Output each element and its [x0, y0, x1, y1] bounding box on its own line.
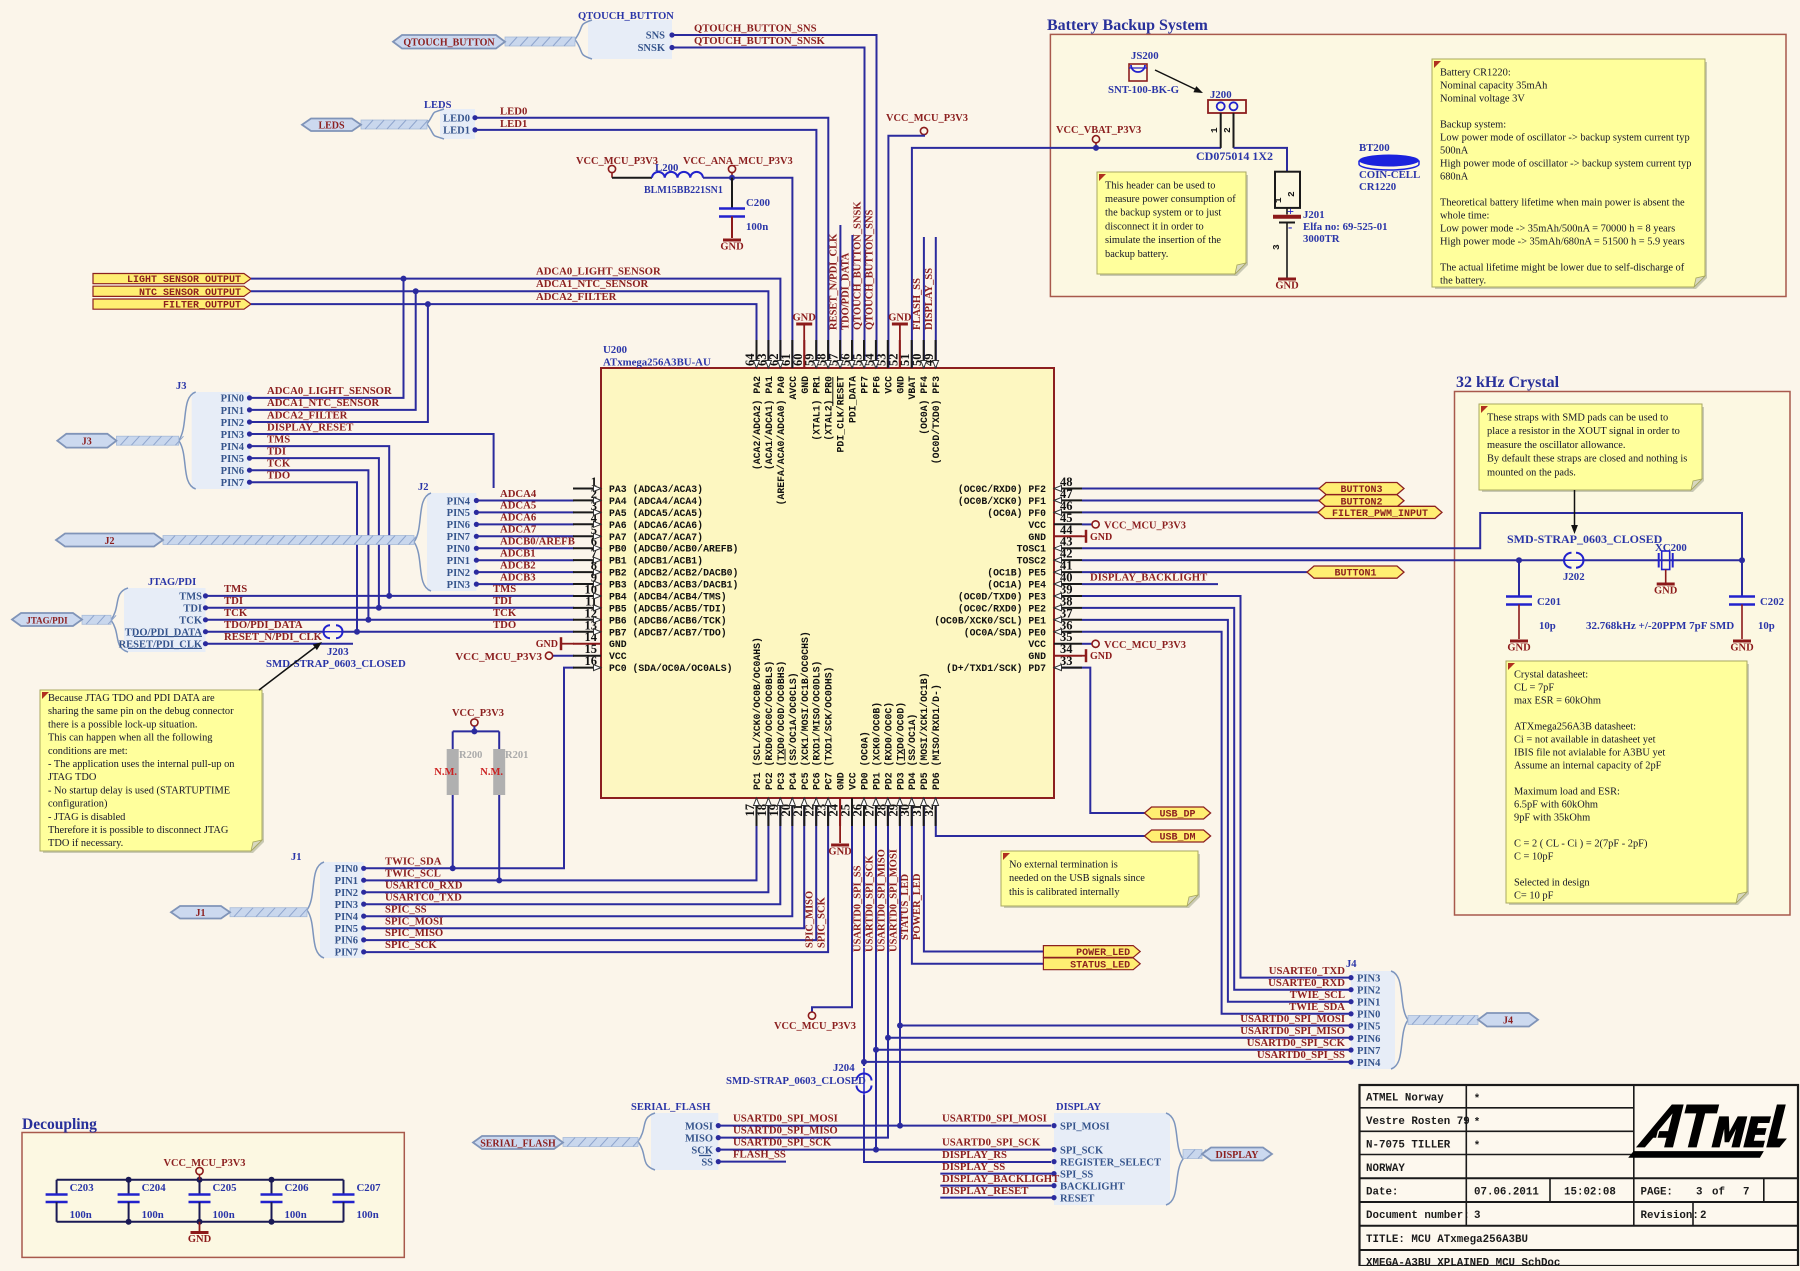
svg-text:Document number:: Document number:: [1366, 1210, 1470, 1222]
svg-text:High power mode -> 35mAh/680nA: High power mode -> 35mAh/680nA = 51500 h…: [1440, 236, 1685, 247]
svg-text:max ESR = 60kOhm: max ESR = 60kOhm: [1514, 695, 1601, 706]
svg-text:PD5 (MOSI/XCK1/OC1B): PD5 (MOSI/XCK1/OC1B): [919, 672, 930, 790]
svg-text:PIN1: PIN1: [335, 876, 358, 887]
svg-text:measure power consumption of: measure power consumption of: [1105, 194, 1236, 205]
svg-text:TWIE_SCL: TWIE_SCL: [1290, 989, 1345, 1001]
svg-text:100n: 100n: [142, 1209, 164, 1221]
svg-text:PIN5: PIN5: [1357, 1022, 1380, 1033]
svg-text:R201: R201: [505, 750, 528, 761]
svg-text:PIN7: PIN7: [335, 948, 358, 959]
svg-text:GND: GND: [1090, 532, 1112, 543]
svg-text:MISO: MISO: [685, 1133, 713, 1144]
svg-text:SMD-STRAP_0603_CLOSED: SMD-STRAP_0603_CLOSED: [1507, 532, 1663, 546]
svg-text:STATUS_LED: STATUS_LED: [1070, 960, 1130, 971]
svg-text:500nA: 500nA: [1440, 145, 1469, 156]
svg-text:- JTAG is disabled: - JTAG is disabled: [48, 812, 126, 823]
svg-text:USARTC0_RXD: USARTC0_RXD: [385, 880, 463, 892]
svg-text:(ACA2/ADCA2) PA2: (ACA2/ADCA2) PA2: [752, 376, 763, 470]
svg-text:ADCA1_NTC_SENSOR: ADCA1_NTC_SENSOR: [267, 397, 380, 409]
svg-text:Crystal datasheet:: Crystal datasheet:: [1514, 669, 1588, 680]
svg-text:IBIS file not avialable for A3: IBIS file not avialable for A3BU yet: [1514, 747, 1665, 758]
svg-text:9pF with 35kOhm: 9pF with 35kOhm: [1514, 812, 1590, 823]
svg-text:(OC1A) PE4: (OC1A) PE4: [987, 580, 1046, 591]
svg-text:VCC_MCU_P3V3: VCC_MCU_P3V3: [164, 1158, 246, 1169]
svg-text:QTOUCH_BUTTON: QTOUCH_BUTTON: [578, 11, 674, 22]
svg-text:BACKLIGHT: BACKLIGHT: [1060, 1181, 1125, 1192]
svg-text:(OC0C/RXD0) PF2: (OC0C/RXD0) PF2: [958, 484, 1046, 495]
svg-text:ADCA0_LIGHT_SENSOR: ADCA0_LIGHT_SENSOR: [267, 385, 392, 397]
svg-text:ADCA7: ADCA7: [500, 524, 537, 536]
svg-text:PIN0: PIN0: [447, 544, 470, 555]
svg-text:PIN6: PIN6: [335, 936, 358, 947]
svg-text:JS200: JS200: [1131, 50, 1159, 62]
svg-text:RESET_N/PDI_CLK: RESET_N/PDI_CLK: [829, 233, 840, 330]
svg-text:CL = 7pF: CL = 7pF: [1514, 682, 1554, 693]
svg-text:USARTD0_SPI_MISO: USARTD0_SPI_MISO: [1240, 1025, 1345, 1037]
svg-text:PIN7: PIN7: [221, 478, 244, 489]
svg-text:VCC: VCC: [1028, 520, 1046, 531]
svg-text:USARTD0_SPI_MISO: USARTD0_SPI_MISO: [733, 1125, 838, 1137]
svg-text:Elfa no: 69-525-01: Elfa no: 69-525-01: [1303, 221, 1388, 233]
svg-text:J3: J3: [82, 437, 92, 448]
svg-text:Low power mode -> 35mAh/500nA: Low power mode -> 35mAh/500nA = 70000 h …: [1440, 223, 1675, 234]
svg-text:disconnect it in order to: disconnect it in order to: [1105, 221, 1204, 232]
svg-text:REGISTER_SELECT: REGISTER_SELECT: [1060, 1157, 1161, 1168]
svg-text:GND: GND: [609, 639, 627, 650]
svg-text:PIN7: PIN7: [1357, 1046, 1380, 1057]
svg-text:SPIC_SCK: SPIC_SCK: [817, 896, 828, 948]
svg-text:PAGE:: PAGE:: [1641, 1187, 1673, 1199]
svg-text:(OC0A) PF0: (OC0A) PF0: [987, 508, 1046, 519]
svg-text:TDO/PDI_DATA: TDO/PDI_DATA: [224, 619, 303, 631]
svg-text:TDI: TDI: [183, 604, 202, 615]
svg-text:6.5pF with 60kOhm: 6.5pF with 60kOhm: [1514, 799, 1598, 810]
svg-text:C201: C201: [1537, 596, 1561, 608]
svg-text:Battery Backup System: Battery Backup System: [1047, 17, 1209, 34]
svg-text:By default these straps are cl: By default these straps are closed and n…: [1487, 454, 1687, 465]
svg-text:PIN0: PIN0: [221, 394, 244, 405]
svg-text:J1: J1: [291, 852, 302, 863]
svg-text:680nA: 680nA: [1440, 171, 1469, 182]
svg-text:PD3 (TXD0/OC0D): PD3 (TXD0/OC0D): [895, 702, 906, 790]
svg-text:ADCB2: ADCB2: [500, 559, 536, 571]
svg-text:PIN2: PIN2: [221, 418, 244, 429]
svg-text:DISPLAY_RS: DISPLAY_RS: [942, 1149, 1007, 1161]
svg-text:PB6 (ADCB6/ACB6/TCK): PB6 (ADCB6/ACB6/TCK): [609, 615, 727, 626]
svg-text:GND: GND: [1028, 651, 1046, 662]
svg-text:SMD-STRAP_0603_CLOSED: SMD-STRAP_0603_CLOSED: [726, 1075, 866, 1087]
svg-text:FLASH_SS: FLASH_SS: [912, 278, 923, 330]
svg-text:BLM15BB221SN1: BLM15BB221SN1: [644, 185, 723, 196]
svg-text:Because JTAG TDO and PDI DATA: Because JTAG TDO and PDI DATA are: [48, 693, 215, 704]
svg-text:C = 10pF: C = 10pF: [1514, 851, 1554, 862]
svg-text:POWER_LED: POWER_LED: [912, 873, 923, 940]
svg-text:VCC_MCU_P3V3: VCC_MCU_P3V3: [1104, 521, 1186, 532]
svg-text:J1: J1: [196, 908, 206, 919]
svg-text:Nominal capacity 35mAh: Nominal capacity 35mAh: [1440, 80, 1548, 91]
svg-text:PIN4: PIN4: [1357, 1058, 1381, 1069]
svg-text:STATUS_LED: STATUS_LED: [900, 873, 911, 940]
svg-text:PA3 (ADCA3/ACA3): PA3 (ADCA3/ACA3): [609, 484, 703, 495]
svg-text:the battery.: the battery.: [1440, 275, 1486, 286]
svg-text:LED0: LED0: [443, 114, 470, 125]
svg-text:PIN5: PIN5: [335, 924, 358, 935]
svg-text:Revision:: Revision:: [1641, 1210, 1699, 1222]
svg-text:backup battery.: backup battery.: [1105, 249, 1168, 260]
svg-text:PC7 (TXD1/SCK/OC0DHS): PC7 (TXD1/SCK/OC0DHS): [824, 667, 835, 790]
svg-text:GND: GND: [1507, 643, 1531, 654]
svg-text:*: *: [1474, 1141, 1480, 1153]
svg-text:PDI_CLK/RESET: PDI_CLK/RESET: [836, 376, 847, 453]
svg-text:USARTE0_RXD: USARTE0_RXD: [1268, 977, 1345, 989]
svg-text:LED0: LED0: [500, 106, 527, 118]
svg-text:PD2 (RXD0/OC0C): PD2 (RXD0/OC0C): [883, 702, 894, 790]
svg-text:CR1220: CR1220: [1359, 181, 1396, 193]
svg-text:PB5 (ADCB5/ACB5/TDI): PB5 (ADCB5/ACB5/TDI): [609, 603, 727, 614]
svg-text:J2: J2: [418, 482, 429, 493]
svg-text:LEDS: LEDS: [424, 100, 452, 111]
svg-text:R200: R200: [459, 750, 482, 761]
svg-text:TWIC_SCL: TWIC_SCL: [385, 868, 441, 880]
svg-text:PB7 (ADCB7/ACB7/TDO): PB7 (ADCB7/ACB7/TDO): [609, 627, 727, 638]
svg-text:the backup system or to just: the backup system or to just: [1105, 208, 1221, 219]
svg-text:VCC_P3V3: VCC_P3V3: [452, 708, 504, 719]
svg-text:PIN2: PIN2: [1357, 986, 1380, 997]
svg-text:QTOUCH_BUTTON: QTOUCH_BUTTON: [403, 38, 495, 49]
svg-text:mounted on the pads.: mounted on the pads.: [1487, 468, 1576, 479]
svg-text:TMS: TMS: [224, 583, 247, 595]
svg-text:SS: SS: [701, 1157, 713, 1168]
svg-text:PC1 (SCL/XCK0/OC0B/OC0AHS): PC1 (SCL/XCK0/OC0B/OC0AHS): [752, 637, 763, 790]
svg-text:ADCB3: ADCB3: [500, 571, 536, 583]
svg-text:SERIAL_FLASH: SERIAL_FLASH: [480, 1138, 556, 1149]
svg-text:NORWAY: NORWAY: [1366, 1163, 1405, 1175]
svg-text:PIN3: PIN3: [1357, 973, 1380, 984]
svg-text:N.M.: N.M.: [480, 767, 503, 778]
svg-text:LIGHT SENSOR OUTPUT: LIGHT SENSOR OUTPUT: [127, 275, 241, 286]
svg-text:FILTER_PWM_INPUT: FILTER_PWM_INPUT: [1332, 509, 1428, 520]
svg-text:3000TR: 3000TR: [1303, 233, 1340, 245]
svg-text:ADCA5: ADCA5: [500, 500, 536, 512]
svg-text:SPI_SCK: SPI_SCK: [1060, 1145, 1104, 1156]
svg-text:VCC: VCC: [1028, 639, 1046, 650]
svg-text:LEDS: LEDS: [318, 121, 345, 132]
svg-text:VCC_MCU_P3V3: VCC_MCU_P3V3: [886, 113, 968, 124]
svg-text:VCC_ANA_MCU_P3V3: VCC_ANA_MCU_P3V3: [683, 156, 793, 167]
svg-text:FLASH_SS: FLASH_SS: [733, 1149, 786, 1161]
svg-text:GND: GND: [720, 242, 744, 253]
svg-text:PIN1: PIN1: [1357, 998, 1380, 1009]
svg-text:BUTTON1: BUTTON1: [1334, 569, 1376, 580]
svg-text:USB_DM: USB_DM: [1159, 833, 1195, 844]
svg-text:USARTD0_SPI_SCK: USARTD0_SPI_SCK: [864, 855, 875, 952]
svg-text:RESET: RESET: [1060, 1193, 1094, 1204]
svg-text:GND: GND: [1730, 643, 1754, 654]
svg-text:VCC_MCU_P3V3: VCC_MCU_P3V3: [1104, 640, 1186, 651]
svg-text:ATxmega256A3BU-AU: ATxmega256A3BU-AU: [603, 357, 711, 369]
svg-text:USARTD0_SPI_MOSI: USARTD0_SPI_MOSI: [888, 849, 899, 952]
svg-text:PIN0: PIN0: [1357, 1010, 1380, 1021]
svg-text:SPIC_MISO: SPIC_MISO: [385, 927, 443, 939]
svg-text:PIN6: PIN6: [447, 520, 470, 531]
svg-text:JTAG/PDI: JTAG/PDI: [26, 615, 68, 625]
svg-text:PIN4: PIN4: [221, 442, 245, 453]
svg-text:USARTC0_TXD: USARTC0_TXD: [385, 891, 462, 903]
svg-text:TCK: TCK: [493, 607, 517, 619]
svg-text:PB2 (ADCB2/ACB2/DACB0): PB2 (ADCB2/ACB2/DACB0): [609, 568, 738, 579]
svg-text:DISPLAY_RESET: DISPLAY_RESET: [942, 1185, 1028, 1197]
svg-text:USARTD0_SPI_MOSI: USARTD0_SPI_MOSI: [733, 1113, 838, 1125]
svg-text:USARTD0_SPI_SCK: USARTD0_SPI_SCK: [733, 1137, 832, 1149]
svg-text:C205: C205: [213, 1182, 237, 1194]
svg-text:GND: GND: [536, 639, 558, 650]
svg-text:PC5 (XCK1/MOSI/OC1B/OC0CHS): PC5 (XCK1/MOSI/OC1B/OC0CHS): [800, 631, 811, 790]
svg-text:SERIAL_FLASH: SERIAL_FLASH: [631, 1102, 710, 1113]
svg-text:SPIC_SCK: SPIC_SCK: [385, 939, 437, 951]
svg-text:J204: J204: [833, 1062, 855, 1074]
svg-text:*: *: [1474, 1094, 1480, 1106]
svg-text:GND: GND: [888, 313, 912, 324]
svg-text:PC3 (TXD0/OC0D/OC0BHS): PC3 (TXD0/OC0D/OC0BHS): [776, 661, 787, 790]
svg-text:PIN0: PIN0: [335, 864, 358, 875]
svg-text:GND: GND: [793, 313, 817, 324]
svg-text:ADCA4: ADCA4: [500, 488, 537, 500]
svg-text:JTAG/PDI: JTAG/PDI: [148, 577, 196, 588]
svg-text:SPIC_MISO: SPIC_MISO: [805, 891, 816, 948]
svg-text:PB4 (ADCB4/ACB4/TMS): PB4 (ADCB4/ACB4/TMS): [609, 592, 727, 603]
svg-text:SPIC_MOSI: SPIC_MOSI: [385, 915, 443, 927]
svg-text:PD6 (MISO/RXD1/D-): PD6 (MISO/RXD1/D-): [931, 684, 942, 790]
svg-text:USARTE0_TXD: USARTE0_TXD: [1269, 965, 1346, 977]
svg-text:PIN5: PIN5: [221, 454, 244, 465]
svg-text:ADCB1: ADCB1: [500, 548, 536, 560]
svg-text:N-7075 TILLER: N-7075 TILLER: [1366, 1140, 1451, 1152]
svg-text:GND: GND: [1654, 586, 1678, 597]
svg-text:AVCC: AVCC: [788, 376, 799, 400]
svg-text:PDI_DATA: PDI_DATA: [848, 376, 859, 423]
svg-text:TDO/PDI_DATA: TDO/PDI_DATA: [841, 252, 852, 330]
svg-text:(OC0D/TXD0) PE3: (OC0D/TXD0) PE3: [958, 592, 1046, 603]
svg-text:TMS: TMS: [493, 583, 516, 595]
svg-text:10p: 10p: [1539, 620, 1556, 632]
svg-text:(OC0C/RXD0) PE2: (OC0C/RXD0) PE2: [958, 603, 1046, 614]
svg-text:PIN2: PIN2: [335, 888, 358, 899]
svg-text:32 kHz Crystal: 32 kHz Crystal: [1456, 374, 1560, 391]
svg-text:(OC0D/TXD0) PF3: (OC0D/TXD0) PF3: [931, 376, 942, 464]
svg-text:ADCA1_NTC_SENSOR: ADCA1_NTC_SENSOR: [536, 278, 649, 290]
svg-text:DISPLAY_BACKLIGHT: DISPLAY_BACKLIGHT: [942, 1173, 1059, 1185]
svg-text:J203: J203: [327, 646, 349, 658]
svg-text:PIN6: PIN6: [221, 466, 244, 477]
svg-text:PIN3: PIN3: [447, 580, 470, 591]
svg-text:PIN6: PIN6: [1357, 1034, 1380, 1045]
svg-text:Vestre Rosten 79: Vestre Rosten 79: [1366, 1116, 1470, 1128]
svg-text:J4: J4: [1346, 959, 1357, 970]
svg-text:(OC1B) PE5: (OC1B) PE5: [987, 568, 1046, 579]
svg-text:-: -: [1288, 219, 1292, 234]
svg-text:DISPLAY: DISPLAY: [1216, 1150, 1260, 1161]
svg-text:15:02:08: 15:02:08: [1564, 1187, 1616, 1199]
svg-text:NTC SENSOR OUTPUT: NTC SENSOR OUTPUT: [139, 288, 241, 299]
svg-text:QTOUCH_BUTTON_SNSK: QTOUCH_BUTTON_SNSK: [853, 201, 864, 330]
svg-text:(OC0B/XCK0/SCL) PE1: (OC0B/XCK0/SCL) PE1: [934, 615, 1046, 626]
svg-text:place a resistor in the XOUT s: place a resistor in the XOUT signal in o…: [1487, 426, 1680, 437]
svg-text:TITLE: MCU ATxmega256A3BU: TITLE: MCU ATxmega256A3BU: [1366, 1234, 1528, 1246]
svg-text:GND: GND: [828, 847, 852, 858]
svg-text:3: 3: [1271, 244, 1282, 250]
svg-text:Therefore it is possible to di: Therefore it is possible to disconnect J…: [48, 825, 229, 836]
svg-text:ADCA0_LIGHT_SENSOR: ADCA0_LIGHT_SENSOR: [536, 266, 661, 278]
svg-text:TCK: TCK: [179, 616, 203, 627]
svg-text:SNS: SNS: [646, 31, 665, 42]
svg-text:LED1: LED1: [500, 118, 527, 130]
svg-text:J2: J2: [105, 536, 115, 547]
svg-text:TOSC1: TOSC1: [1017, 544, 1047, 555]
svg-text:PIN4: PIN4: [447, 496, 471, 507]
svg-text:PIN2: PIN2: [447, 568, 470, 579]
svg-text:Assume an internal capacity of: Assume an internal capacity of 2pF: [1514, 760, 1662, 771]
svg-text:J4: J4: [1503, 1016, 1513, 1027]
svg-text:MOSI: MOSI: [685, 1121, 713, 1132]
svg-text:2: 2: [1286, 191, 1297, 197]
svg-text:Selected in design: Selected in design: [1514, 877, 1590, 888]
svg-text:SPIC_SS: SPIC_SS: [385, 903, 427, 915]
svg-text:BT200: BT200: [1359, 142, 1390, 154]
svg-text:XC200: XC200: [1655, 542, 1687, 554]
svg-text:No external termination is: No external termination is: [1009, 859, 1118, 870]
svg-text:C204: C204: [142, 1182, 167, 1194]
svg-text:TDI: TDI: [224, 595, 243, 607]
svg-text:ADCB0/AREFB: ADCB0/AREFB: [500, 536, 575, 548]
svg-text:Ci = not available in datashee: Ci = not available in datasheet yet: [1514, 734, 1656, 745]
svg-text:32.768kHz +/-20PPM 7pF SMD: 32.768kHz +/-20PPM 7pF SMD: [1586, 620, 1734, 632]
svg-text:PC0 (SDA/OC0A/OC0ALS): PC0 (SDA/OC0A/OC0ALS): [609, 663, 732, 674]
svg-text:TMS: TMS: [179, 592, 202, 603]
svg-text:(OC0A/SDA) PE0: (OC0A/SDA) PE0: [964, 627, 1046, 638]
svg-text:USARTD0_SPI_SS: USARTD0_SPI_SS: [1257, 1049, 1345, 1061]
svg-text:ADCA2_FILTER: ADCA2_FILTER: [536, 291, 617, 303]
svg-text:7: 7: [1743, 1187, 1749, 1199]
svg-text:TWIE_SDA: TWIE_SDA: [1289, 1001, 1345, 1013]
svg-text:(OC0A) PF4: (OC0A) PF4: [919, 376, 930, 435]
svg-text:DISPLAY: DISPLAY: [1056, 1102, 1102, 1113]
svg-text:100n: 100n: [746, 221, 768, 233]
svg-text:USARTD0_SPI_SS: USARTD0_SPI_SS: [852, 865, 863, 952]
svg-text:DISPLAY_SS: DISPLAY_SS: [942, 1161, 1005, 1173]
svg-text:TCK: TCK: [224, 607, 248, 619]
svg-text:Nominal voltage 3V: Nominal voltage 3V: [1440, 93, 1525, 104]
svg-text:VCC_VBAT_P3V3: VCC_VBAT_P3V3: [1056, 125, 1141, 136]
svg-text:ADCA6: ADCA6: [500, 512, 537, 524]
svg-text:(OC0B/XCK0) PF1: (OC0B/XCK0) PF1: [958, 496, 1046, 507]
svg-text:USARTD0_SPI_SCK: USARTD0_SPI_SCK: [942, 1137, 1041, 1149]
svg-text:PIN3: PIN3: [221, 430, 244, 441]
svg-text:10p: 10p: [1758, 620, 1775, 632]
svg-text:100n: 100n: [357, 1209, 379, 1221]
svg-text:C207: C207: [357, 1182, 382, 1194]
svg-text:TCK: TCK: [267, 458, 291, 470]
svg-text:Backup system:: Backup system:: [1440, 119, 1506, 130]
svg-text:VCC_MCU_P3V3: VCC_MCU_P3V3: [774, 1021, 856, 1032]
svg-text:PA4 (ADCA4/ACA4): PA4 (ADCA4/ACA4): [609, 496, 703, 507]
svg-text:PA6 (ADCA6/ACA6): PA6 (ADCA6/ACA6): [609, 520, 703, 531]
svg-text:GND: GND: [188, 1234, 212, 1245]
svg-text:PD1 (XCK0/OC0B): PD1 (XCK0/OC0B): [871, 702, 882, 790]
svg-text:GND: GND: [1275, 281, 1299, 292]
svg-text:VBAT: VBAT: [907, 376, 918, 400]
svg-text:PIN7: PIN7: [447, 532, 470, 543]
svg-text:FILTER_OUTPUT: FILTER_OUTPUT: [163, 301, 241, 312]
svg-text:(ACA1/ADCA1) PA1: (ACA1/ADCA1) PA1: [764, 376, 775, 470]
svg-text:PB0 (ADCB0/ACB0/AREFB): PB0 (ADCB0/ACB0/AREFB): [609, 544, 738, 555]
svg-text:This header can be used to: This header can be used to: [1105, 180, 1216, 191]
svg-text:100n: 100n: [213, 1209, 235, 1221]
svg-text:2: 2: [1700, 1210, 1706, 1222]
svg-text:CD075014 1X2: CD075014 1X2: [1196, 149, 1273, 163]
svg-text:TDO if necessary.: TDO if necessary.: [48, 838, 123, 849]
svg-text:of: of: [1712, 1187, 1725, 1199]
svg-text:PIN5: PIN5: [447, 508, 470, 519]
svg-text:These straps with SMD pads can: These straps with SMD pads can be used t…: [1487, 412, 1668, 423]
svg-text:C202: C202: [1760, 596, 1784, 608]
svg-text:The actual lifetime might be l: The actual lifetime might be lower due t…: [1440, 262, 1685, 273]
svg-text:DISPLAY_RESET: DISPLAY_RESET: [267, 421, 353, 433]
svg-text:USARTD0_SPI_SCK: USARTD0_SPI_SCK: [1247, 1037, 1346, 1049]
svg-text:ATXmega256A3B datasheet:: ATXmega256A3B datasheet:: [1514, 721, 1636, 732]
svg-text:C= 10 pF: C= 10 pF: [1514, 890, 1554, 901]
svg-text:Date:: Date:: [1366, 1187, 1398, 1199]
svg-text:PIN1: PIN1: [447, 556, 470, 567]
svg-text:LED1: LED1: [443, 126, 470, 137]
svg-text:07.06.2011: 07.06.2011: [1474, 1187, 1539, 1199]
svg-text:PC6 (RXD1/MISO/OC0DLS): PC6 (RXD1/MISO/OC0DLS): [812, 661, 823, 790]
svg-text:PD4 (SS/OC1A): PD4 (SS/OC1A): [907, 714, 918, 790]
svg-text:GND: GND: [1090, 651, 1112, 662]
svg-text:simulate the insertion of the: simulate the insertion of the: [1105, 235, 1221, 246]
svg-text:C206: C206: [285, 1182, 310, 1194]
svg-text:TMS: TMS: [267, 433, 290, 445]
svg-text:PIN1: PIN1: [221, 406, 244, 417]
svg-text:DISPLAY_SS: DISPLAY_SS: [924, 268, 935, 330]
svg-text:- The application uses the int: - The application uses the internal pull…: [48, 759, 235, 770]
svg-text:L200: L200: [655, 162, 678, 174]
svg-text:(AREFA/ACA0/ADCA0) PA0: (AREFA/ACA0/ADCA0) PA0: [776, 376, 787, 505]
svg-text:C203: C203: [70, 1182, 95, 1194]
svg-text:VCC_MCU_P3V3: VCC_MCU_P3V3: [455, 651, 542, 663]
svg-text:*: *: [1474, 1117, 1480, 1129]
svg-text:SCK: SCK: [691, 1145, 713, 1156]
svg-text:TWIC_SDA: TWIC_SDA: [385, 856, 442, 868]
svg-text:GND: GND: [1028, 532, 1046, 543]
svg-text:Battery CR1220:: Battery CR1220:: [1440, 67, 1511, 78]
svg-text:there is a possible lock-up si: there is a possible lock-up situation.: [48, 719, 197, 730]
svg-text:2: 2: [1222, 127, 1233, 133]
svg-text:J202: J202: [1563, 571, 1585, 583]
svg-text:- No startup delay is used (ST: - No startup delay is used (STARTUPTIME: [48, 785, 230, 796]
svg-text:PC2 (RXD0/OC0C/OC0BLS): PC2 (RXD0/OC0C/OC0BLS): [764, 661, 775, 790]
svg-text:sharing the same pin on the de: sharing the same pin on the debug connec…: [48, 706, 234, 717]
svg-text:VCC: VCC: [609, 651, 627, 662]
svg-text:PIN4: PIN4: [335, 912, 359, 923]
svg-text:PC4 (SS/OC1A/OC0CLS): PC4 (SS/OC1A/OC0CLS): [788, 672, 799, 790]
svg-text:USARTD0_SPI_MISO: USARTD0_SPI_MISO: [876, 849, 887, 952]
svg-text:PB3 (ADCB3/ACB3/DACB1): PB3 (ADCB3/ACB3/DACB1): [609, 580, 738, 591]
svg-text:TOSC2: TOSC2: [1017, 556, 1047, 567]
svg-text:TDI: TDI: [267, 445, 286, 457]
svg-text:VCC: VCC: [883, 376, 894, 394]
svg-text:J3: J3: [176, 381, 187, 392]
svg-text:configuration): configuration): [48, 799, 107, 810]
